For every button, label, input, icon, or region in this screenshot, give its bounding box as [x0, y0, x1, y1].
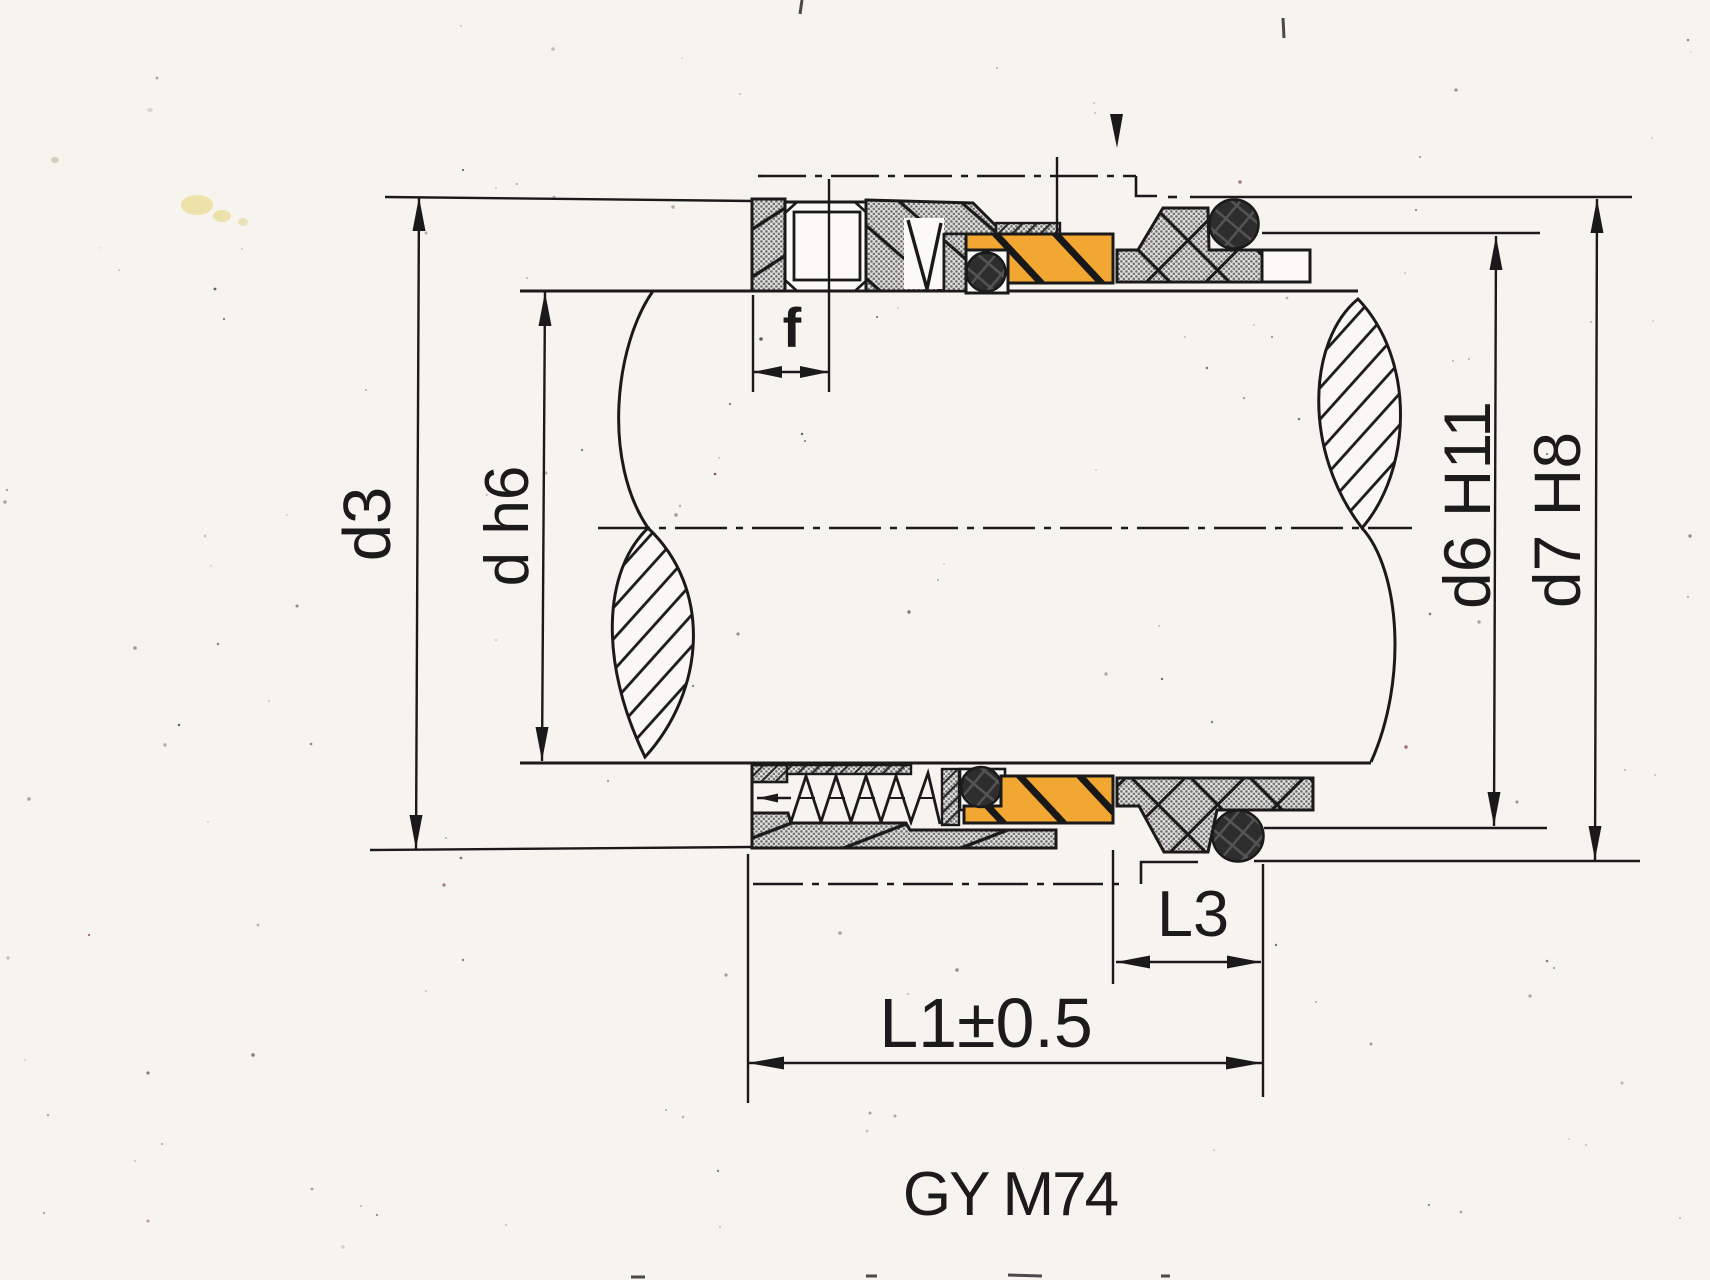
svg-text:d6 H11: d6 H11	[1430, 401, 1504, 609]
svg-text:d h6: d h6	[473, 466, 542, 587]
svg-text:L3: L3	[1157, 877, 1229, 950]
svg-text:d3: d3	[330, 487, 405, 562]
svg-text:GY M74: GY M74	[903, 1160, 1118, 1229]
svg-text:d7 H8: d7 H8	[1520, 432, 1594, 608]
svg-text:L1±0.5: L1±0.5	[879, 984, 1093, 1062]
svg-text:f: f	[783, 296, 802, 359]
